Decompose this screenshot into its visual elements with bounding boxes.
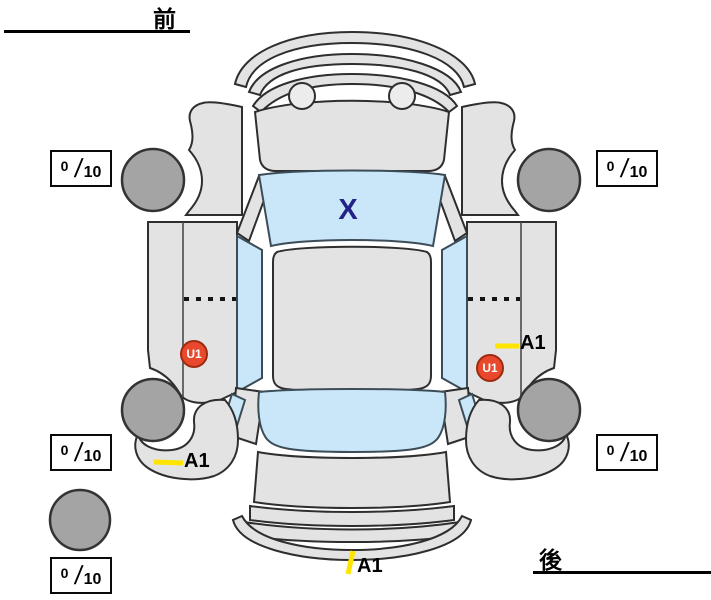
rear-label-text: 後 bbox=[539, 547, 562, 573]
tread-box-rear-right: 0/10 bbox=[596, 434, 658, 471]
rear-label: 後 bbox=[533, 541, 711, 574]
windshield-damage-marker: X bbox=[326, 196, 370, 225]
tread-value: 0 bbox=[61, 565, 69, 581]
tread-value: 0 bbox=[607, 158, 615, 174]
side-panel-left bbox=[148, 222, 237, 403]
damage-label-a1-rear-center: A1 bbox=[357, 556, 383, 576]
damage-label-a1-right-side: A1 bbox=[520, 333, 546, 353]
tread-max: 10 bbox=[630, 164, 648, 182]
tread-value: 0 bbox=[61, 442, 69, 458]
front-fender-left bbox=[186, 102, 242, 215]
tread-max: 10 bbox=[84, 571, 102, 589]
damage-badge-u1-left: U1 bbox=[180, 340, 208, 368]
tread-max: 10 bbox=[84, 448, 102, 466]
tread-max: 10 bbox=[84, 164, 102, 182]
vehicle-damage-diagram: 前 後 X 0/10 0/10 0/10 0/10 0/10 U1 U1 A1 … bbox=[0, 0, 711, 600]
front-label: 前 bbox=[4, 0, 190, 33]
tread-box-spare: 0/10 bbox=[50, 557, 112, 594]
hood bbox=[255, 101, 449, 171]
front-fender-right bbox=[462, 102, 518, 215]
tread-box-front-left: 0/10 bbox=[50, 150, 112, 187]
tire-spare bbox=[50, 490, 110, 550]
side-window-right bbox=[442, 236, 467, 392]
tailgate bbox=[254, 452, 450, 508]
tread-box-front-right: 0/10 bbox=[596, 150, 658, 187]
tire-rear-left bbox=[122, 379, 184, 441]
roof bbox=[273, 247, 431, 392]
side-window-left bbox=[237, 236, 262, 392]
car-top-view-drawing bbox=[0, 0, 711, 600]
headlight-left bbox=[289, 83, 315, 109]
front-label-text: 前 bbox=[153, 6, 176, 32]
headlight-right bbox=[389, 83, 415, 109]
tire-front-right bbox=[518, 149, 580, 211]
tread-box-rear-left: 0/10 bbox=[50, 434, 112, 471]
tread-value: 0 bbox=[61, 158, 69, 174]
tread-max: 10 bbox=[630, 448, 648, 466]
damage-label-a1-rear-left: A1 bbox=[184, 451, 210, 471]
damage-tick-rear-left bbox=[154, 462, 183, 463]
tread-value: 0 bbox=[607, 442, 615, 458]
damage-badge-u1-right: U1 bbox=[476, 354, 504, 382]
tire-front-left bbox=[122, 149, 184, 211]
rear-window bbox=[258, 389, 445, 452]
tire-rear-right bbox=[518, 379, 580, 441]
